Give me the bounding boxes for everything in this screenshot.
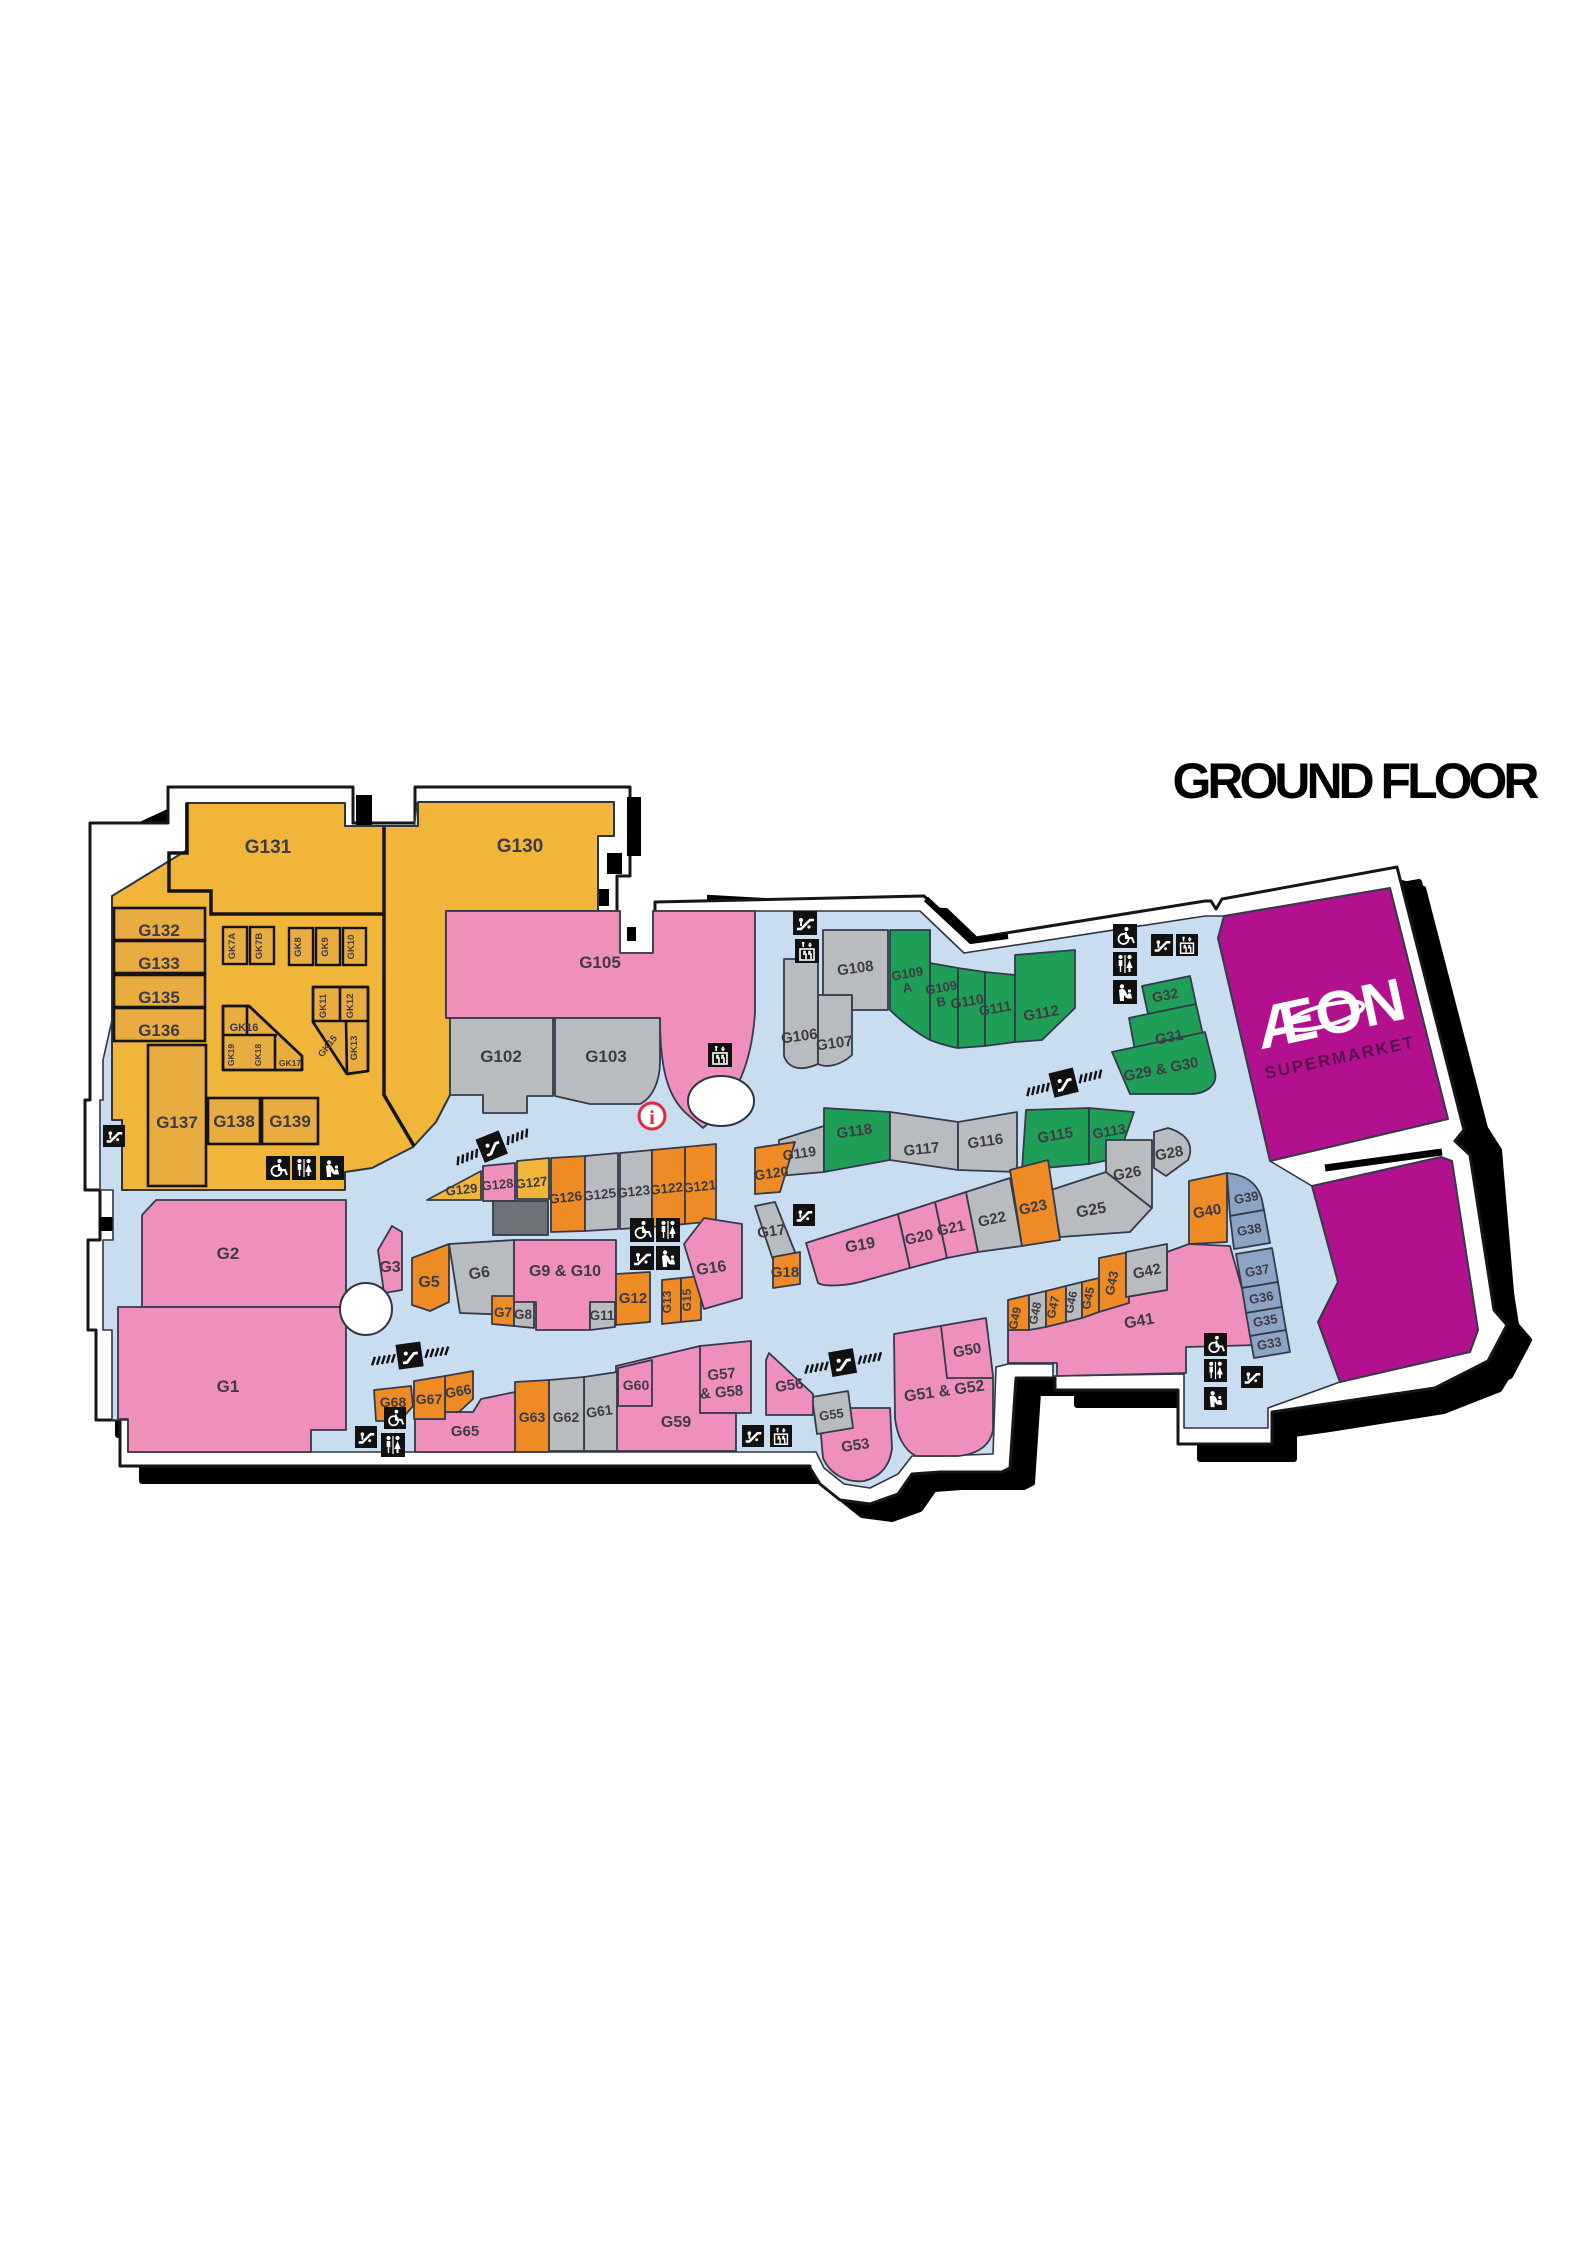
svg-text:GK13: GK13 [349, 1036, 360, 1061]
svg-text:G138: G138 [213, 1112, 255, 1131]
svg-text:G6: G6 [468, 1264, 492, 1284]
svg-text:G8: G8 [514, 1307, 533, 1322]
svg-text:G132: G132 [138, 921, 180, 940]
svg-text:GROUND FLOOR: GROUND FLOOR [1172, 753, 1539, 809]
svg-text:G67: G67 [416, 1391, 443, 1407]
svg-text:GK7A: GK7A [227, 933, 238, 960]
svg-text:G3: G3 [379, 1259, 400, 1276]
svg-text:G7: G7 [494, 1305, 512, 1320]
svg-text:G133: G133 [138, 954, 180, 973]
svg-text:GK17: GK17 [279, 1058, 301, 1068]
svg-text:G9 & G10: G9 & G10 [529, 1263, 601, 1280]
svg-text:G13: G13 [660, 1290, 674, 1313]
svg-text:G5: G5 [418, 1274, 439, 1291]
svg-text:G139: G139 [269, 1112, 311, 1131]
svg-text:G60: G60 [623, 1377, 650, 1393]
svg-text:G2: G2 [217, 1244, 240, 1263]
svg-text:GK10: GK10 [346, 935, 357, 960]
svg-text:G135: G135 [138, 988, 180, 1007]
svg-text:G103: G103 [585, 1047, 627, 1066]
svg-text:GK12: GK12 [345, 994, 356, 1019]
svg-text:G102: G102 [480, 1047, 522, 1066]
svg-text:G130: G130 [497, 836, 543, 857]
svg-text:GK9: GK9 [320, 937, 331, 957]
svg-text:GK11: GK11 [318, 993, 329, 1018]
svg-text:G59: G59 [661, 1414, 691, 1431]
svg-text:G131: G131 [245, 837, 292, 858]
svg-text:G62: G62 [553, 1409, 580, 1425]
svg-text:GK19: GK19 [226, 1044, 236, 1066]
svg-text:G63: G63 [519, 1409, 546, 1425]
svg-text:GK7B: GK7B [254, 933, 265, 960]
svg-text:G15: G15 [680, 1288, 694, 1311]
svg-text:G11: G11 [590, 1308, 615, 1323]
svg-text:GK18: GK18 [253, 1044, 263, 1066]
svg-text:G68: G68 [380, 1394, 407, 1410]
svg-text:G12: G12 [619, 1290, 647, 1307]
svg-text:G137: G137 [156, 1113, 198, 1132]
svg-text:G136: G136 [138, 1021, 180, 1040]
svg-text:GK8: GK8 [293, 937, 304, 957]
svg-text:G105: G105 [579, 953, 621, 972]
svg-text:G1: G1 [217, 1377, 240, 1396]
svg-text:G57: G57 [707, 1365, 737, 1384]
svg-text:GK16: GK16 [230, 1022, 259, 1034]
svg-text:i: i [649, 1107, 655, 1129]
svg-text:G18: G18 [771, 1264, 799, 1281]
svg-text:G65: G65 [451, 1423, 479, 1440]
